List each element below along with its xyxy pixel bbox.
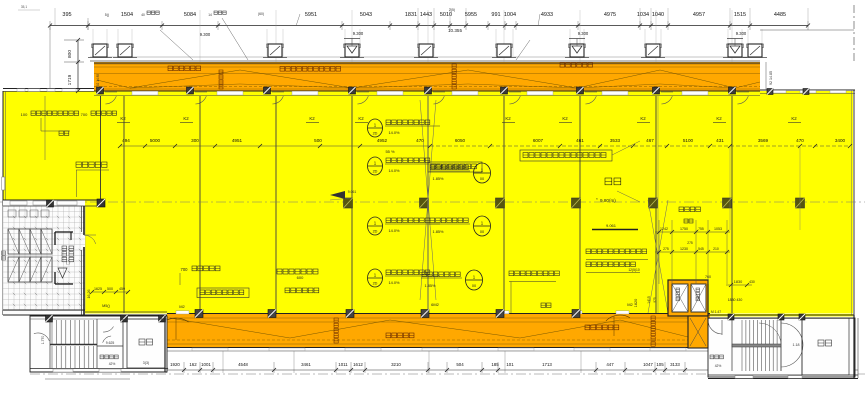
svg-text:M5(): M5() xyxy=(102,304,111,308)
svg-text:210: 210 xyxy=(713,247,719,251)
svg-text:1415: 1415 xyxy=(647,296,651,304)
svg-text:3569: 3569 xyxy=(758,138,769,143)
svg-text:9.300: 9.300 xyxy=(353,31,364,36)
svg-text:00: 00 xyxy=(472,284,476,288)
svg-text:14.0%: 14.0% xyxy=(388,228,400,233)
svg-text:4951: 4951 xyxy=(232,138,243,143)
svg-text:991: 991 xyxy=(491,12,500,18)
svg-text:9.80(m): 9.80(m) xyxy=(600,198,616,203)
svg-text:2D: 2D xyxy=(373,170,378,174)
svg-text:105: 105 xyxy=(656,362,664,367)
svg-text:755: 755 xyxy=(698,227,704,231)
svg-text:14.0%: 14.0% xyxy=(388,168,400,173)
svg-text:40: 40 xyxy=(141,13,145,17)
svg-text:12(5)10: 12(5)10 xyxy=(628,268,640,272)
svg-text:K2: K2 xyxy=(716,116,722,121)
svg-text:459: 459 xyxy=(119,287,125,291)
svg-text:(60): (60) xyxy=(258,12,264,16)
svg-text:4548: 4548 xyxy=(238,362,248,367)
svg-text:431: 431 xyxy=(716,138,724,143)
svg-text:3400: 3400 xyxy=(835,138,846,143)
svg-text:1.18: 1.18 xyxy=(793,343,800,347)
svg-text:K2: K2 xyxy=(120,116,126,121)
svg-text:K2: K2 xyxy=(183,116,189,121)
svg-text:92 14.85: 92 14.85 xyxy=(769,71,773,85)
svg-text:1.85%: 1.85% xyxy=(424,283,436,288)
svg-text:1.770: 1.770 xyxy=(41,336,45,345)
svg-text:1625: 1625 xyxy=(94,287,102,291)
svg-text:9.625: 9.625 xyxy=(106,341,115,345)
svg-text:1242: 1242 xyxy=(660,227,668,231)
svg-text:5100: 5100 xyxy=(683,138,694,143)
svg-text:5084: 5084 xyxy=(184,12,196,18)
svg-text:1612: 1612 xyxy=(353,362,363,367)
svg-text:461: 461 xyxy=(576,138,584,143)
svg-text:5955: 5955 xyxy=(465,12,477,18)
svg-text:00: 00 xyxy=(480,230,484,234)
svg-text:10.355: 10.355 xyxy=(448,28,462,33)
svg-text:2D: 2D xyxy=(373,230,378,234)
svg-text:1.85%: 1.85% xyxy=(432,229,444,234)
svg-text:5043: 5043 xyxy=(360,12,372,18)
svg-text:3(3): 3(3) xyxy=(143,361,149,365)
svg-text:3461: 3461 xyxy=(301,362,311,367)
svg-text:6007: 6007 xyxy=(533,138,544,143)
svg-text:6050: 6050 xyxy=(455,138,466,143)
svg-text:M 1.47: M 1.47 xyxy=(711,310,721,314)
svg-text:1830 430: 1830 430 xyxy=(728,298,743,302)
svg-text:447: 447 xyxy=(606,362,614,367)
svg-text:16.26: 16.26 xyxy=(87,290,91,299)
svg-text:5000: 5000 xyxy=(150,138,161,143)
svg-text:1504: 1504 xyxy=(121,12,133,18)
svg-text:470: 470 xyxy=(416,138,424,143)
svg-text:14.0%: 14.0% xyxy=(388,130,400,135)
svg-text:9.300: 9.300 xyxy=(578,31,589,36)
svg-text:1443: 1443 xyxy=(420,12,432,18)
svg-text:1515: 1515 xyxy=(734,12,746,18)
svg-text:275: 275 xyxy=(663,247,669,251)
svg-text:M2: M2 xyxy=(627,302,633,307)
svg-text:494: 494 xyxy=(122,138,130,143)
svg-text:600: 600 xyxy=(297,275,304,280)
svg-text:275: 275 xyxy=(687,241,693,245)
svg-text:9.061: 9.061 xyxy=(606,223,617,228)
svg-text:470: 470 xyxy=(796,138,804,143)
svg-text:4485: 4485 xyxy=(774,12,786,18)
svg-text:2D: 2D xyxy=(373,132,378,136)
svg-text:6M2: 6M2 xyxy=(431,302,440,307)
svg-text:K2: K2 xyxy=(309,116,315,121)
svg-text:101: 101 xyxy=(506,362,514,367)
svg-text:4975: 4975 xyxy=(604,12,616,18)
svg-text:1750: 1750 xyxy=(680,227,688,231)
svg-text:9.300: 9.300 xyxy=(736,31,747,36)
svg-text:K2: K2 xyxy=(505,116,511,121)
svg-text:3533: 3533 xyxy=(610,138,621,143)
svg-text:545: 545 xyxy=(698,247,704,251)
svg-text:700: 700 xyxy=(181,267,189,272)
svg-text:K2: K2 xyxy=(562,116,568,121)
svg-text:K2: K2 xyxy=(358,116,364,121)
svg-text:1.85%: 1.85% xyxy=(432,176,444,181)
svg-text:467: 467 xyxy=(646,138,654,143)
svg-text:1830: 1830 xyxy=(734,280,742,284)
svg-text:1820: 1820 xyxy=(634,299,638,307)
svg-text:4952: 4952 xyxy=(377,138,388,143)
svg-text:9.300: 9.300 xyxy=(200,32,211,37)
svg-text:504: 504 xyxy=(456,362,464,367)
svg-text:185: 185 xyxy=(491,362,499,367)
svg-text:100: 100 xyxy=(21,112,28,117)
svg-text:14.0%: 14.0% xyxy=(388,280,400,285)
svg-text:1719: 1719 xyxy=(67,74,73,85)
svg-text:3210: 3210 xyxy=(391,362,401,367)
svg-text:55 %: 55 % xyxy=(385,149,395,154)
svg-text:M2: M2 xyxy=(179,304,185,309)
svg-text:162: 162 xyxy=(189,362,197,367)
svg-text:14: 14 xyxy=(208,13,212,17)
svg-text:42%: 42% xyxy=(715,364,722,368)
svg-text:430: 430 xyxy=(749,280,755,284)
svg-text:2(5): 2(5) xyxy=(449,8,455,12)
svg-text:42%: 42% xyxy=(109,362,116,366)
svg-text:00: 00 xyxy=(480,177,484,181)
svg-text:2D: 2D xyxy=(373,282,378,286)
svg-text:1047: 1047 xyxy=(643,362,653,367)
svg-text:1004: 1004 xyxy=(504,12,516,18)
svg-text:5(): 5() xyxy=(105,13,109,17)
svg-text:395: 395 xyxy=(62,12,71,18)
svg-text:4933: 4933 xyxy=(541,12,553,18)
svg-text:1053: 1053 xyxy=(714,227,722,231)
svg-text:1011: 1011 xyxy=(338,362,348,367)
svg-text:5010: 5010 xyxy=(440,12,452,18)
svg-text:K2: K2 xyxy=(640,116,646,121)
svg-text:1230: 1230 xyxy=(680,247,688,251)
svg-text:700: 700 xyxy=(81,112,88,117)
svg-text:( ): ( ) xyxy=(66,261,69,265)
svg-text:5951: 5951 xyxy=(305,12,317,18)
svg-text:1040: 1040 xyxy=(652,12,664,18)
svg-text:35,1: 35,1 xyxy=(21,5,27,9)
svg-text:1920: 1920 xyxy=(170,362,180,367)
svg-text:4957: 4957 xyxy=(693,12,705,18)
svg-text:9.061: 9.061 xyxy=(348,190,357,194)
svg-text:92 14 85: 92 14 85 xyxy=(96,74,100,87)
svg-text:800: 800 xyxy=(67,50,73,58)
svg-text:K2: K2 xyxy=(791,116,797,121)
svg-text:1001: 1001 xyxy=(201,362,211,367)
svg-text:300: 300 xyxy=(191,138,199,143)
svg-text:500: 500 xyxy=(314,138,322,143)
svg-text:3133: 3133 xyxy=(670,362,680,367)
svg-text:1034: 1034 xyxy=(637,12,649,18)
svg-text:975: 975 xyxy=(653,297,657,303)
svg-text:1713: 1713 xyxy=(542,362,552,367)
svg-text:1831: 1831 xyxy=(405,12,417,18)
svg-text:500: 500 xyxy=(107,287,113,291)
